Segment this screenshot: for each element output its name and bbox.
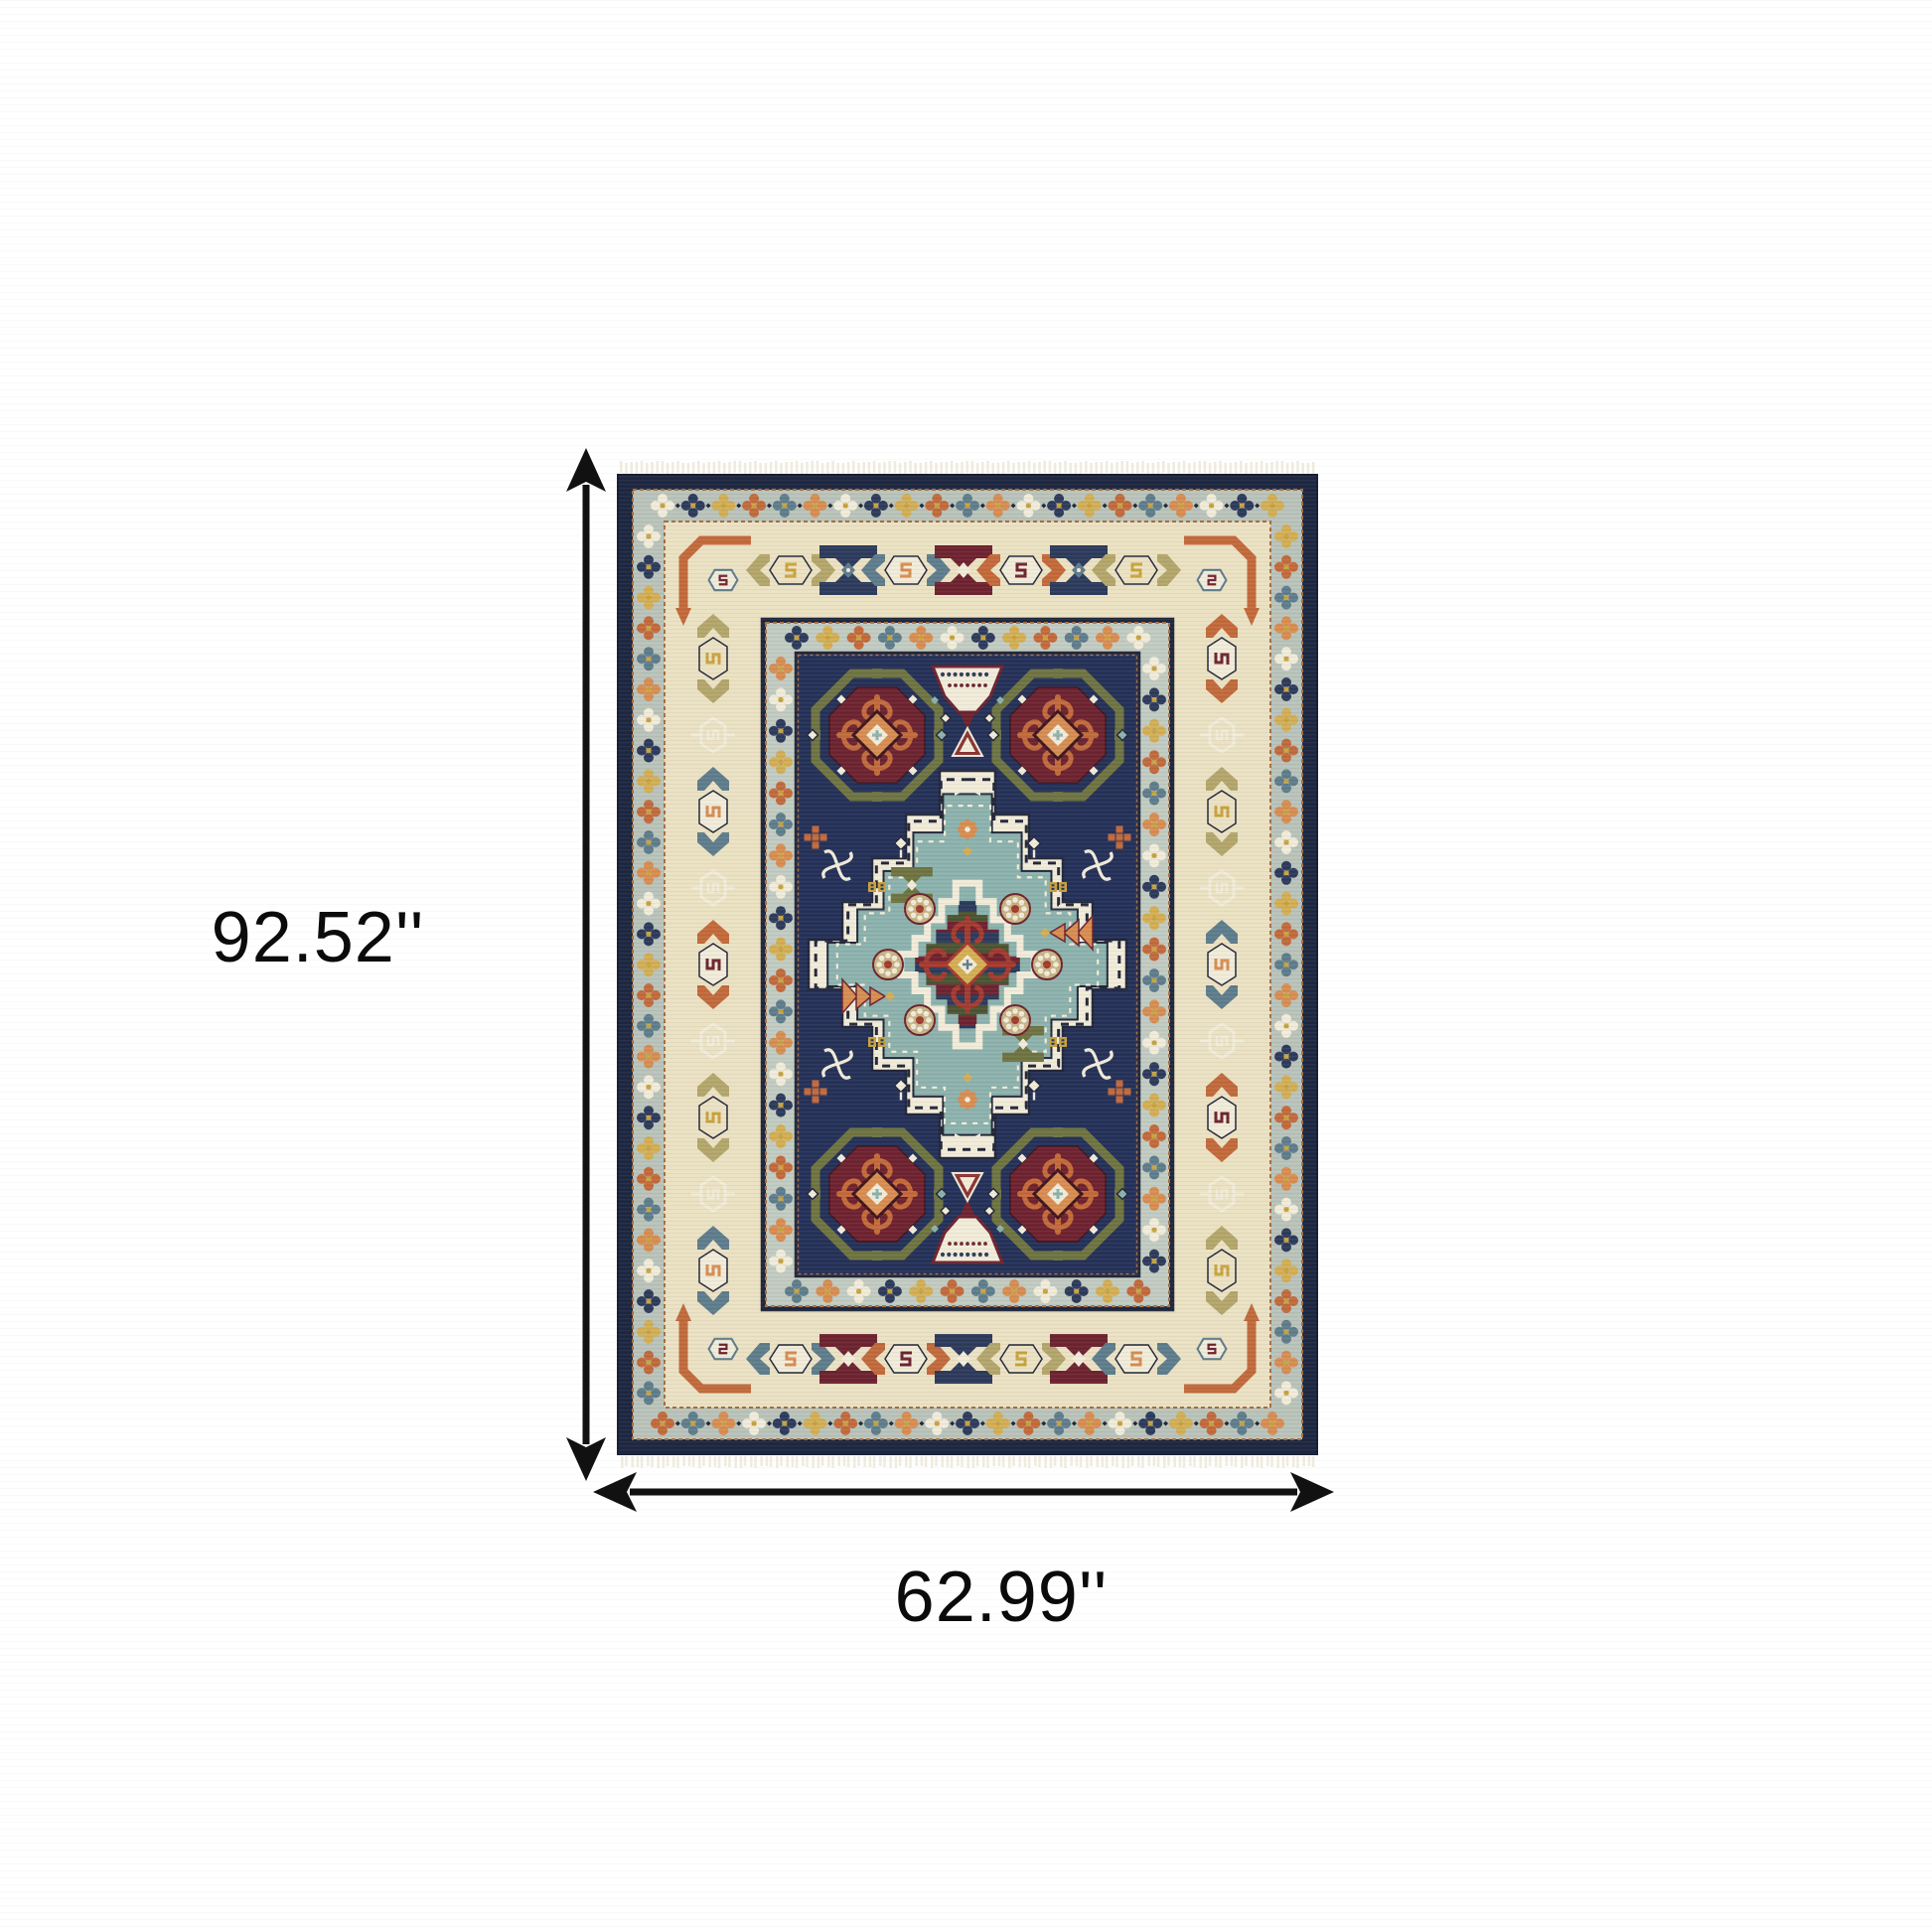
height-dimension-label: 92.52'': [139, 899, 497, 977]
height-dimension-arrow-icon: [554, 445, 618, 1484]
rug-product-photo: [617, 460, 1318, 1471]
product-dimension-image: 92.52'' 62.99'': [0, 0, 1932, 1932]
rug-illustration: [617, 460, 1318, 1471]
width-dimension-arrow-icon: [590, 1460, 1337, 1524]
width-dimension-label: 62.99'': [822, 1559, 1180, 1637]
